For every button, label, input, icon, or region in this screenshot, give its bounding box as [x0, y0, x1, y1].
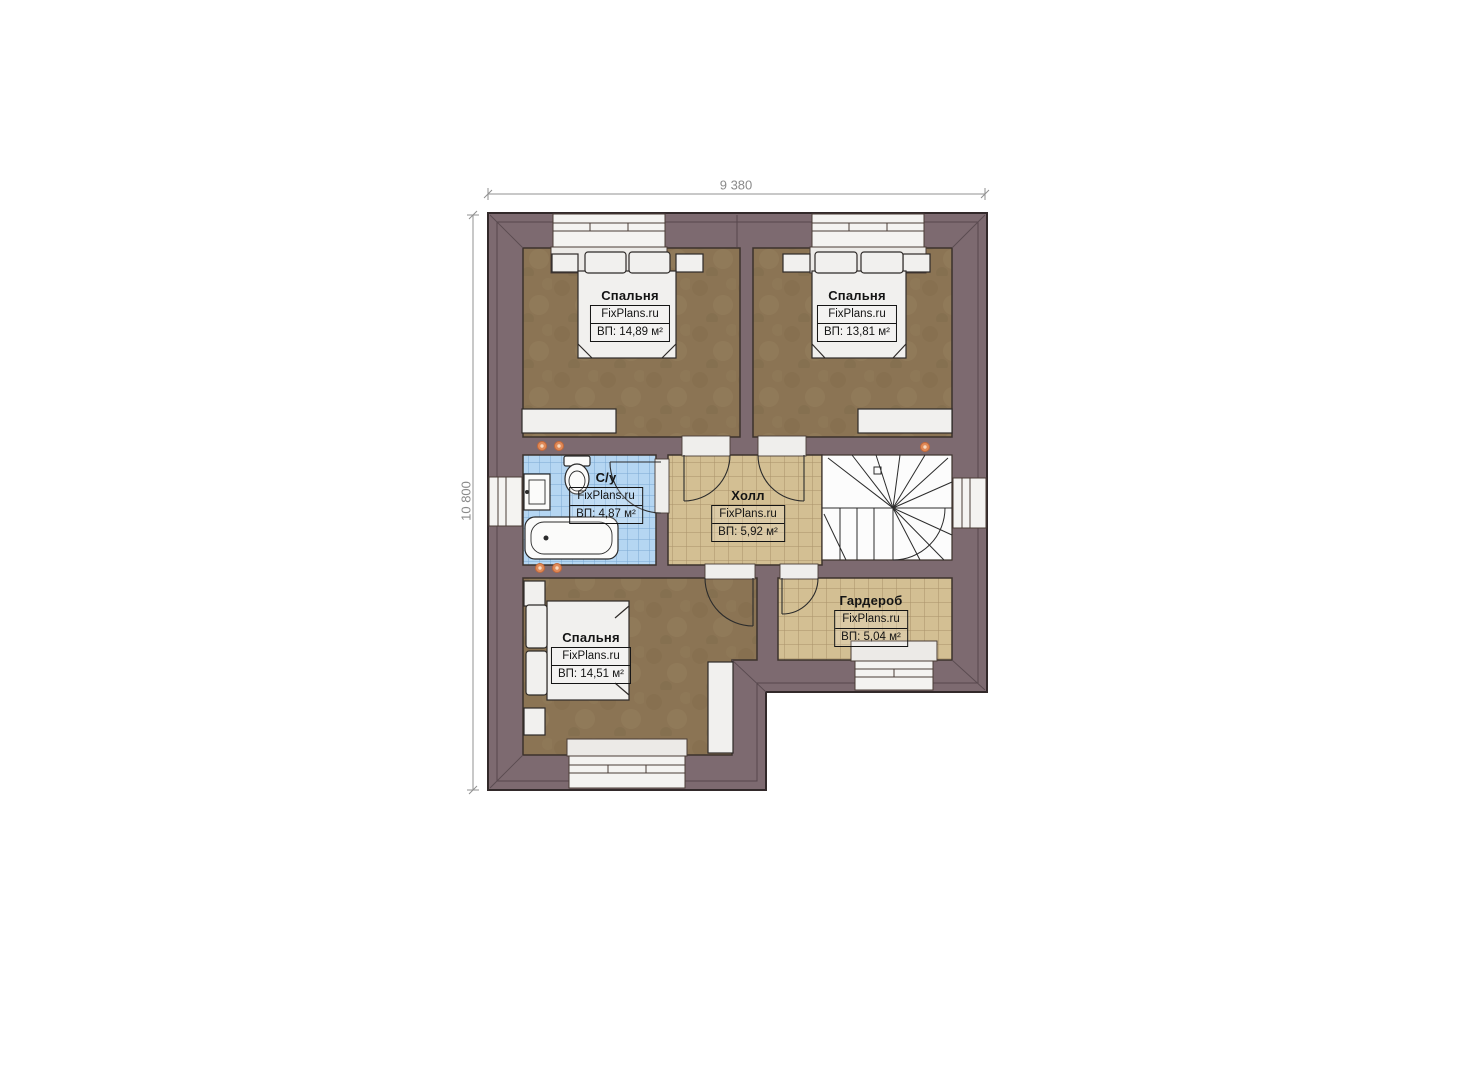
dresser: [858, 409, 952, 433]
room-brand: FixPlans.ru: [591, 306, 669, 324]
room-name: С/у: [569, 470, 643, 485]
wardrobe-cabinet: [708, 662, 733, 753]
room-name: Гардероб: [834, 593, 908, 608]
nightstand: [524, 581, 545, 606]
door-bedroom-top-left: [682, 436, 730, 456]
room-area: ВП: 13,81 м²: [818, 324, 896, 341]
room-brand: FixPlans.ru: [835, 611, 907, 629]
room-area: ВП: 5,92 м²: [712, 524, 784, 541]
window-bottom: [567, 739, 687, 788]
room-name: Спальня: [551, 630, 631, 645]
room-name: Холл: [711, 488, 785, 503]
door-bedroom-top-right: [758, 436, 806, 456]
window-left: [489, 477, 522, 526]
dresser: [522, 409, 616, 433]
door-bathroom: [655, 459, 669, 513]
floor-plan-page: 9 380 10 800 Спальня FixPlans.ru ВП: 14,…: [0, 0, 1473, 1080]
room-label-bathroom: С/у FixPlans.ru ВП: 4,87 м²: [569, 470, 643, 524]
room-label-bedroom-top-right: Спальня FixPlans.ru ВП: 13,81 м²: [817, 288, 897, 342]
room-area: ВП: 14,89 м²: [591, 324, 669, 341]
room-area: ВП: 5,04 м²: [835, 629, 907, 646]
room-brand: FixPlans.ru: [818, 306, 896, 324]
dimension-width-label: 9 380: [720, 178, 753, 193]
nightstand: [676, 254, 703, 272]
sink: [524, 474, 550, 510]
room-brand: FixPlans.ru: [552, 648, 630, 666]
room-label-bedroom-bottom: Спальня FixPlans.ru ВП: 14,51 м²: [551, 630, 631, 684]
window-right: [953, 478, 986, 528]
room-area: ВП: 4,87 м²: [570, 506, 642, 523]
room-name: Спальня: [817, 288, 897, 303]
room-label-wardrobe: Гардероб FixPlans.ru ВП: 5,04 м²: [834, 593, 908, 647]
nightstand: [783, 254, 810, 272]
dimension-height-label: 10 800: [459, 481, 474, 521]
room-brand: FixPlans.ru: [712, 506, 784, 524]
room-label-bedroom-top-left: Спальня FixPlans.ru ВП: 14,89 м²: [590, 288, 670, 342]
room-name: Спальня: [590, 288, 670, 303]
door-bedroom-bottom: [705, 564, 755, 579]
door-wardrobe: [780, 564, 818, 579]
window-wardrobe: [851, 641, 937, 690]
room-label-hall: Холл FixPlans.ru ВП: 5,92 м²: [711, 488, 785, 542]
room-brand: FixPlans.ru: [570, 488, 642, 506]
nightstand: [524, 708, 545, 735]
nightstand: [903, 254, 930, 272]
room-area: ВП: 14,51 м²: [552, 666, 630, 683]
nightstand: [552, 254, 578, 272]
